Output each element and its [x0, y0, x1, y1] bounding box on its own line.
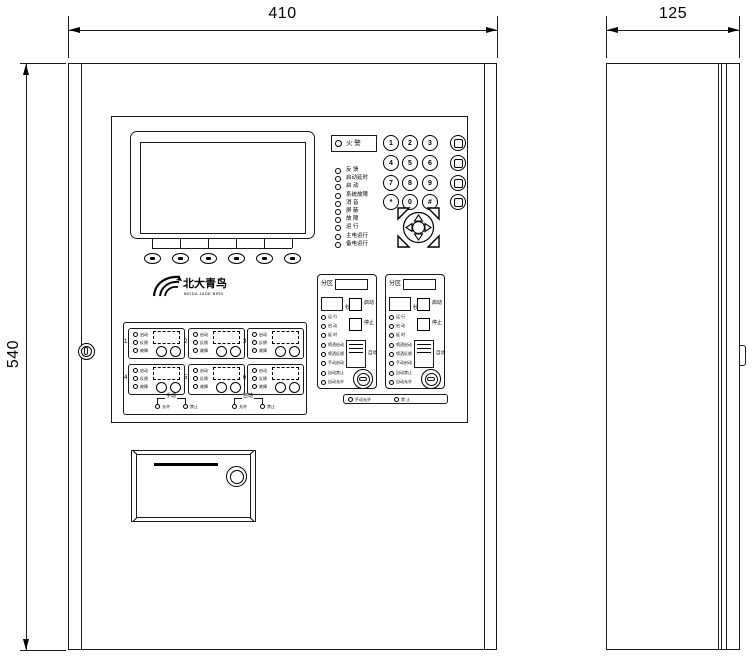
module-led	[133, 376, 138, 381]
module-led	[252, 368, 257, 373]
module-stop-button[interactable]	[289, 382, 300, 393]
linkage-control-area: 1 启动 反馈 故障 2 启动 反馈 故障 3 启动	[123, 322, 307, 415]
module-led-label: 启动	[259, 369, 267, 373]
lcd-screen	[140, 142, 306, 234]
gas-led	[321, 361, 326, 366]
bracket-line	[177, 398, 185, 399]
module-stop-button[interactable]	[230, 346, 241, 357]
gas-footer-led	[394, 397, 399, 402]
side-handle[interactable]	[739, 345, 746, 366]
gas-led-label: 手动启动	[328, 361, 344, 365]
arrowhead	[728, 27, 739, 33]
module-led	[252, 340, 257, 345]
module-led	[252, 348, 257, 353]
status-led-label: 消 音	[346, 201, 359, 207]
softkey-leader-line	[152, 239, 153, 248]
softkey-leader-line	[180, 239, 181, 248]
gas-led-label: 启 动	[396, 324, 405, 328]
start-label: 启动	[432, 301, 442, 306]
gas-module-1: 分区 秒 启动 停止 运 行 启 动 延 时 喷洒启动 喷洒反馈 手动启动 自动…	[317, 274, 377, 389]
status-led-label: 运 行	[346, 225, 359, 231]
module-led	[252, 384, 257, 389]
status-led-label: 启动延时	[346, 176, 368, 182]
group-led	[155, 404, 160, 409]
module-start-button[interactable]	[216, 346, 227, 357]
dimension-line	[606, 30, 740, 31]
module-led	[133, 348, 138, 353]
brand-subtitle: BEIDA JADE BIRD	[184, 292, 224, 296]
linkage-module-3: 启动 反馈 故障	[247, 328, 304, 359]
module-led	[193, 376, 198, 381]
keypad-key-4[interactable]: 4	[383, 155, 399, 171]
module-led-label: 故障	[200, 385, 208, 389]
softkey-leader-line	[264, 239, 265, 248]
arrowhead	[486, 27, 497, 33]
module-led	[133, 368, 138, 373]
module-label-window	[213, 331, 240, 344]
module-start-button[interactable]	[216, 382, 227, 393]
gas-led	[389, 333, 394, 338]
module-led-label: 反馈	[259, 341, 267, 345]
gas-led-label: 运 行	[396, 315, 405, 319]
keypad-key-2[interactable]: 2	[402, 135, 418, 151]
dim-side-depth-label: 125	[630, 6, 716, 23]
gas-led	[389, 361, 394, 366]
module-led	[252, 376, 257, 381]
module-led-label: 启动	[259, 333, 267, 337]
bird-logo-icon	[150, 274, 182, 300]
module-led	[193, 348, 198, 353]
zone-display	[403, 279, 436, 290]
soft-key-6[interactable]	[284, 253, 301, 264]
paper-slot	[154, 463, 218, 466]
arrowhead	[23, 64, 29, 75]
function-key-icon	[454, 159, 463, 168]
engineering-drawing: 410 125 540 火 警 反 馈 启动延时 启 动 系统故	[0, 0, 755, 660]
module-led	[193, 332, 198, 337]
extension-line	[20, 650, 66, 651]
gas-led	[321, 315, 326, 320]
status-led-label: 系统故障	[346, 193, 368, 199]
module-label-window	[213, 367, 240, 380]
key-label: 3	[428, 140, 432, 147]
module-start-button[interactable]	[156, 382, 167, 393]
auto-manual-slider[interactable]	[414, 340, 434, 368]
softkey-leader-line	[208, 239, 209, 248]
arrowhead	[23, 639, 29, 650]
dimension-line	[26, 63, 27, 650]
group-led	[183, 404, 188, 409]
gas-led	[389, 343, 394, 348]
extension-line	[606, 16, 607, 58]
cabinet-edge-line	[484, 63, 485, 650]
module-number: 3	[243, 339, 246, 345]
bracket-line	[157, 398, 165, 399]
soft-key-glyph	[290, 257, 295, 260]
module-led-label: 启动	[200, 369, 208, 373]
keypad-key-3[interactable]: 3	[422, 135, 438, 151]
module-number: 1	[124, 339, 127, 345]
gas-footer-strip: 手动允许 禁 止	[343, 394, 448, 404]
soft-key-glyph	[206, 257, 211, 260]
status-led-label: 屏 蔽	[346, 209, 359, 215]
linkage-module-5: 启动 反馈 故障	[188, 364, 245, 395]
soft-key-glyph	[262, 257, 267, 260]
auto-label: 自动	[436, 351, 445, 356]
extension-line	[68, 16, 69, 58]
linkage-module-4: 启动 反馈 故障	[128, 364, 185, 395]
module-led-label: 故障	[140, 385, 148, 389]
module-stop-button[interactable]	[289, 346, 300, 357]
gas-footer-label: 禁 止	[401, 398, 410, 402]
gas-led-label: 自动禁止	[328, 371, 344, 375]
gas-led	[321, 324, 326, 329]
status-led	[335, 242, 341, 248]
gas-led-label: 手动启动	[396, 361, 412, 365]
gas-led-label: 延 时	[328, 333, 337, 337]
side-door-seam-line	[721, 63, 722, 650]
group-led-label: 允许	[239, 405, 247, 409]
stop-button[interactable]	[417, 318, 430, 331]
function-key-3[interactable]	[450, 175, 466, 191]
module-led	[193, 384, 198, 389]
gas-module-2: 分区 秒 启动 停止 运 行 启 动 延 时 喷洒启动 喷洒反馈 手动启动 自动…	[385, 274, 445, 389]
fire-led-label: 火 警	[346, 141, 361, 148]
arrowhead	[607, 27, 618, 33]
status-led	[335, 225, 341, 231]
keypad-key-1[interactable]: 1	[383, 135, 399, 151]
soft-key-5[interactable]	[256, 253, 273, 264]
slider-grip[interactable]	[349, 344, 363, 353]
module-led-label: 反馈	[200, 341, 208, 345]
module-stop-button[interactable]	[230, 382, 241, 393]
key-label: 1	[389, 140, 393, 147]
softkey-leader-line	[152, 248, 292, 249]
auto-group-title: 自动	[243, 394, 253, 399]
start-button[interactable]	[417, 298, 430, 311]
module-led-label: 故障	[200, 349, 208, 353]
manual-group-title: 手动	[166, 394, 176, 399]
status-led	[335, 184, 341, 190]
key-label: 9	[428, 180, 432, 187]
gas-led-label: 喷洒启动	[396, 343, 412, 347]
module-start-button[interactable]	[275, 382, 286, 393]
group-led-label: 禁止	[190, 405, 198, 409]
key-label: 5	[408, 160, 412, 167]
gas-led	[321, 352, 326, 357]
side-view-cabinet	[606, 63, 740, 650]
key-switch-slot	[427, 377, 435, 381]
bracket-line	[234, 398, 242, 399]
start-label: 启动	[364, 301, 374, 306]
module-led-label: 故障	[140, 349, 148, 353]
module-led	[133, 384, 138, 389]
gas-led	[389, 371, 394, 376]
module-led-label: 故障	[259, 349, 267, 353]
zone-label: 分区	[321, 281, 333, 287]
fire-led	[335, 140, 342, 147]
stop-label: 停止	[432, 321, 442, 326]
module-led	[133, 340, 138, 345]
module-start-button[interactable]	[275, 346, 286, 357]
group-led-label: 允许	[162, 405, 170, 409]
side-panel-line	[726, 63, 727, 650]
function-key-icon	[454, 179, 463, 188]
status-led-label: 主电运行	[346, 234, 368, 240]
status-led-label: 备电运行	[346, 242, 368, 248]
gas-led-label: 喷洒反馈	[328, 352, 344, 356]
soft-key-glyph	[234, 257, 239, 260]
softkey-leader-line	[292, 239, 293, 248]
gas-footer-led	[348, 397, 353, 402]
module-led	[193, 340, 198, 345]
nav-pad[interactable]	[395, 205, 442, 250]
soft-key-2[interactable]	[172, 253, 189, 264]
keypad-key-6[interactable]: 6	[422, 155, 438, 171]
gas-led	[389, 352, 394, 357]
gas-led-label: 自动允许	[328, 380, 344, 384]
gas-led-label: 自动允许	[396, 380, 412, 384]
status-led	[335, 193, 341, 199]
key-label: 7	[389, 180, 393, 187]
countdown-display	[321, 297, 343, 311]
gas-led-label: 运 行	[328, 315, 337, 319]
module-led-label: 启动	[140, 333, 148, 337]
status-led	[335, 168, 341, 174]
stop-button[interactable]	[349, 318, 362, 331]
module-led-label: 反馈	[140, 341, 148, 345]
bracket-line	[254, 398, 262, 399]
key-label: 4	[389, 160, 393, 167]
linkage-module-1: 启动 反馈 故障	[128, 328, 185, 359]
gas-footer-label: 手动允许	[355, 398, 371, 402]
key-label: 6	[428, 160, 432, 167]
soft-key-glyph	[178, 257, 183, 260]
key-switch-slot	[359, 377, 367, 381]
module-led-label: 启动	[140, 369, 148, 373]
dimension-line	[68, 30, 497, 31]
status-led-label: 反 馈	[346, 168, 359, 174]
keypad-key-8[interactable]: 8	[402, 175, 418, 191]
module-stop-button[interactable]	[170, 382, 181, 393]
function-key-1[interactable]	[450, 135, 466, 151]
gas-led	[321, 333, 326, 338]
module-number: 2	[184, 339, 187, 345]
module-led-label: 反馈	[200, 377, 208, 381]
soft-key-1[interactable]	[144, 253, 161, 264]
status-led	[335, 209, 341, 215]
key-label: 8	[408, 180, 412, 187]
module-stop-button[interactable]	[170, 346, 181, 357]
auto-manual-slider[interactable]	[346, 340, 366, 368]
gas-led	[389, 380, 394, 385]
module-led-label: 反馈	[140, 377, 148, 381]
gas-led-label: 自动禁止	[396, 371, 412, 375]
module-led	[133, 332, 138, 337]
keypad-key-9[interactable]: 9	[422, 175, 438, 191]
status-led-label: 启 动	[346, 184, 359, 190]
zone-label: 分区	[389, 281, 401, 287]
function-key-4[interactable]	[450, 194, 466, 210]
module-led-label: 故障	[259, 385, 267, 389]
auto-label: 自动	[368, 351, 377, 356]
gas-led	[389, 315, 394, 320]
module-led-label: 反馈	[259, 377, 267, 381]
module-number: 5	[184, 375, 187, 381]
gas-led-label: 启 动	[328, 324, 337, 328]
printer-knob-ring	[230, 470, 244, 484]
gas-led-label: 喷洒启动	[328, 343, 344, 347]
function-key-icon	[454, 139, 463, 148]
module-label-window	[272, 367, 299, 380]
zone-display	[335, 279, 368, 290]
function-key-icon	[454, 198, 463, 207]
module-start-button[interactable]	[156, 346, 167, 357]
key-label: *	[390, 199, 393, 206]
gas-led	[321, 343, 326, 348]
start-button[interactable]	[349, 298, 362, 311]
status-led-label: 故 障	[346, 217, 359, 223]
module-number: 4	[124, 375, 127, 381]
soft-key-4[interactable]	[228, 253, 245, 264]
status-led	[335, 234, 341, 240]
key-label: 2	[408, 140, 412, 147]
gas-led	[389, 324, 394, 329]
dim-height-label: 540	[6, 324, 22, 384]
arrowhead	[69, 27, 80, 33]
function-key-2[interactable]	[450, 155, 466, 171]
gas-led	[321, 380, 326, 385]
module-label-window	[153, 331, 180, 344]
module-label-window	[153, 367, 180, 380]
slider-grip[interactable]	[417, 344, 431, 353]
status-led	[335, 176, 341, 182]
module-label-window	[272, 331, 299, 344]
group-led-label: 禁止	[267, 405, 275, 409]
soft-key-glyph	[150, 257, 155, 260]
module-led	[193, 368, 198, 373]
countdown-display	[389, 297, 411, 311]
keypad-key-7[interactable]: 7	[383, 175, 399, 191]
status-led	[335, 201, 341, 207]
group-led	[232, 404, 237, 409]
gas-led	[321, 371, 326, 376]
module-led	[252, 332, 257, 337]
stop-label: 停止	[364, 321, 374, 326]
module-led-label: 启动	[200, 333, 208, 337]
group-led	[260, 404, 265, 409]
brand-name: 北大青鸟	[183, 279, 227, 291]
dim-front-width-label: 410	[240, 6, 325, 23]
linkage-module-2: 启动 反馈 故障	[188, 328, 245, 359]
soft-key-3[interactable]	[200, 253, 217, 264]
extension-line	[739, 16, 740, 58]
gas-led-label: 喷洒反馈	[396, 352, 412, 356]
extension-line	[497, 16, 498, 58]
door-lock-keyhole	[84, 347, 88, 355]
linkage-module-6: 启动 反馈 故障	[247, 364, 304, 395]
softkey-leader-line	[236, 239, 237, 248]
side-door-seam-line	[718, 63, 719, 650]
module-number: 6	[243, 375, 246, 381]
status-led	[335, 217, 341, 223]
gas-led-label: 延 时	[396, 333, 405, 337]
keypad-key-5[interactable]: 5	[402, 155, 418, 171]
nav-center-button[interactable]	[413, 222, 425, 234]
